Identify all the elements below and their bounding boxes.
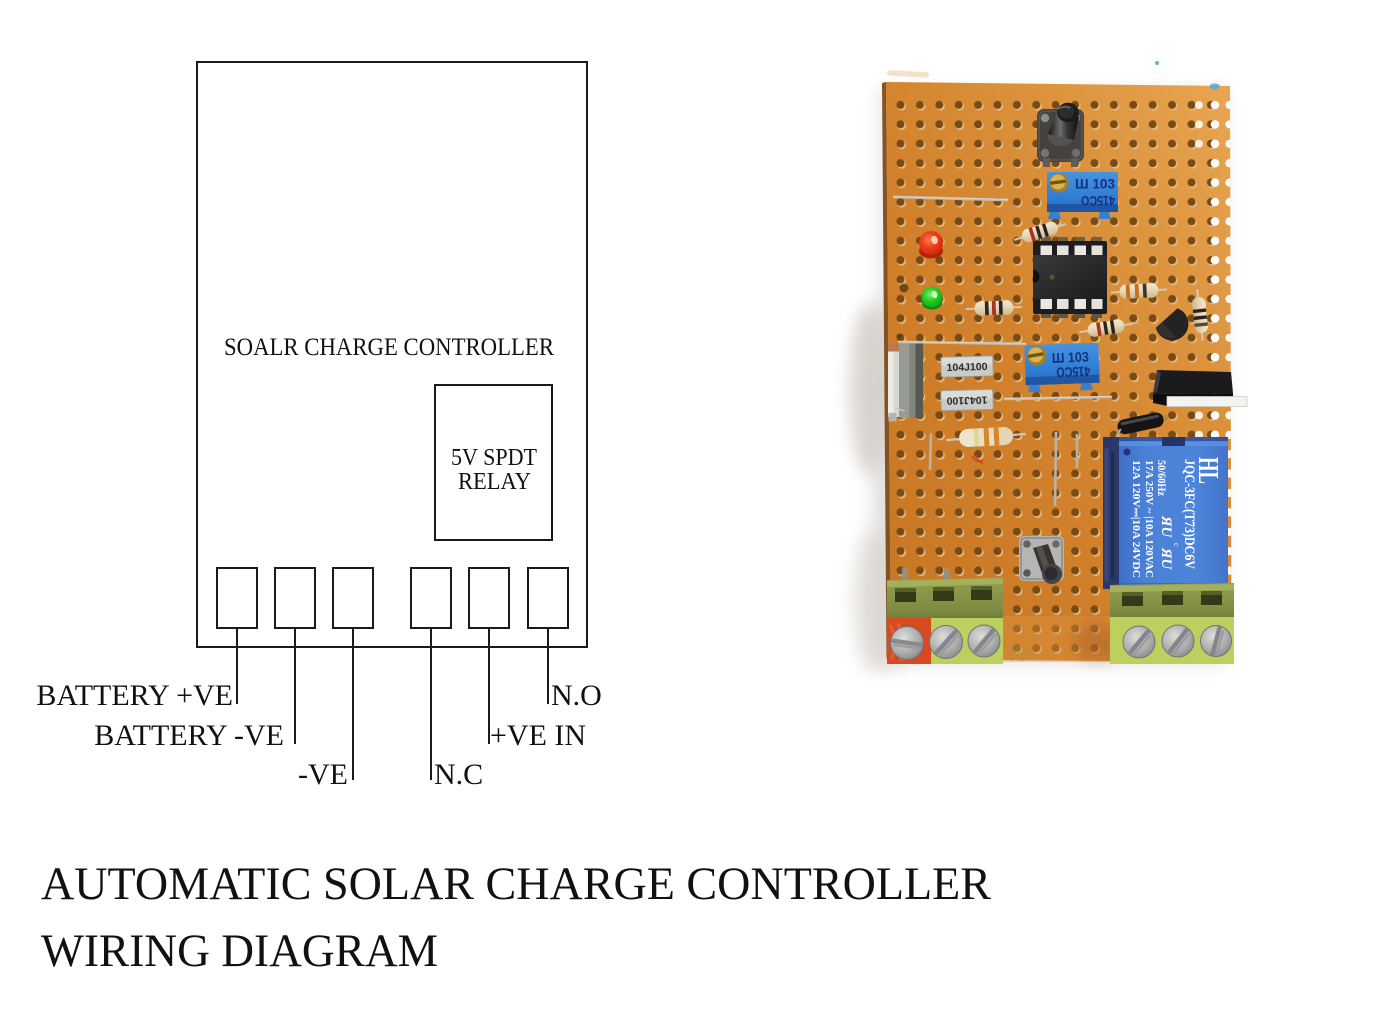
svg-text:WIRING DIAGRAM: WIRING DIAGRAM (41, 925, 438, 977)
svg-text:12A 120V⎓|10A 24VDC: 12A 120V⎓|10A 24VDC (1130, 460, 1141, 578)
svg-text:ЯU: ЯU (1158, 515, 1174, 538)
svg-text:BATTERY -VE: BATTERY -VE (94, 719, 284, 752)
svg-text:-VE: -VE (298, 758, 348, 791)
svg-text:17A 250V ~ |10A 120VAC: 17A 250V ~ |10A 120VAC (1143, 460, 1154, 578)
svg-text:RELAY: RELAY (458, 469, 531, 495)
svg-text:415CO: 415CO (1056, 364, 1091, 381)
svg-text:SOALR CHARGE CONTROLLER: SOALR CHARGE CONTROLLER (224, 334, 554, 361)
svg-text:104J100: 104J100 (946, 361, 987, 374)
svg-text:c: c (1172, 543, 1181, 547)
svg-text:104J100: 104J100 (946, 393, 987, 406)
svg-text:N.O: N.O (551, 679, 602, 712)
svg-text:ЯU: ЯU (1158, 547, 1174, 570)
svg-text:5V SPDT: 5V SPDT (451, 445, 537, 471)
svg-text:Ш 103: Ш 103 (1052, 349, 1090, 366)
svg-text:BATTERY +VE: BATTERY +VE (36, 679, 233, 712)
svg-text:N.C: N.C (434, 758, 483, 791)
svg-text:+VE IN: +VE IN (490, 719, 586, 752)
svg-text:415CO: 415CO (1081, 193, 1115, 209)
svg-text:JQC-3FC(T73)DC6V: JQC-3FC(T73)DC6V (1181, 459, 1197, 569)
svg-text:50/60Hz: 50/60Hz (1155, 460, 1169, 497)
svg-text:Ш 103: Ш 103 (1075, 176, 1115, 192)
svg-text:AUTOMATIC SOLAR CHARGE CONTROL: AUTOMATIC SOLAR CHARGE CONTROLLER (41, 858, 992, 910)
